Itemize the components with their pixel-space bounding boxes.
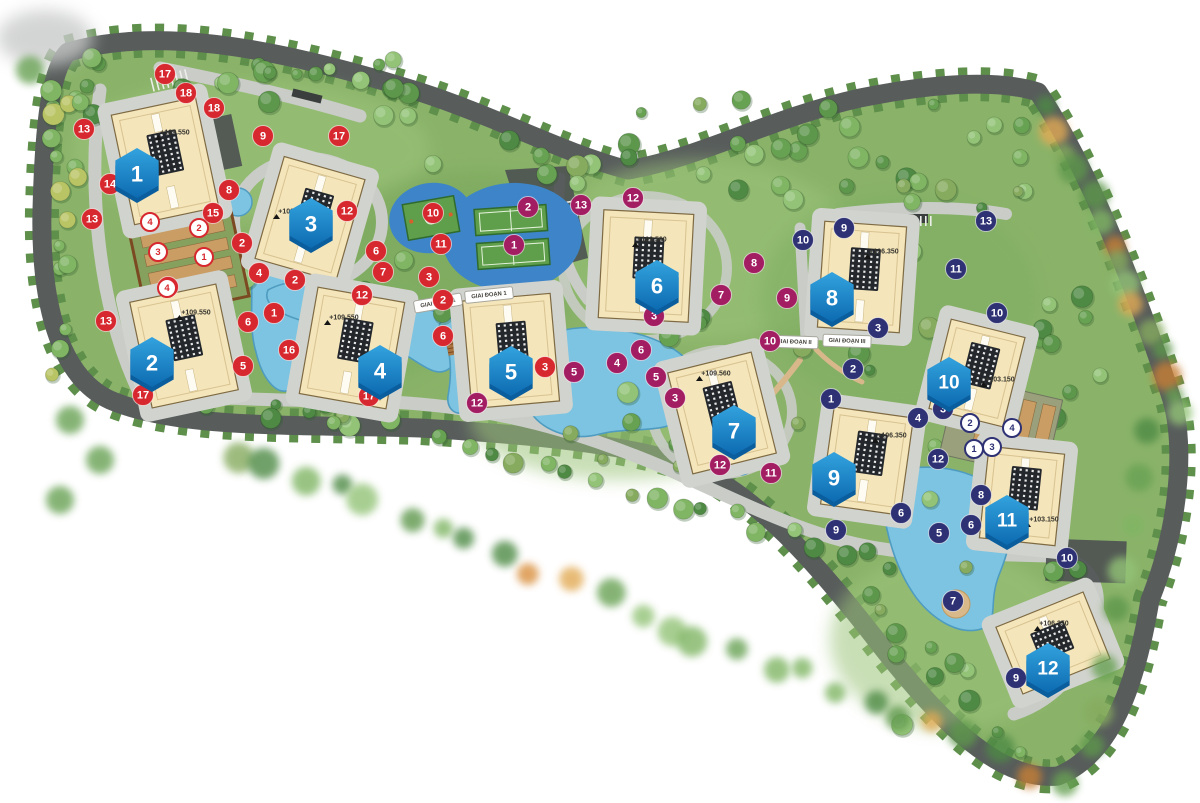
site-plan-svg: +109.550+109.550+109.550+109.550+109.560… [0,0,1200,803]
svg-text:11: 11 [950,264,962,276]
svg-text:2: 2 [146,351,158,376]
svg-text:12: 12 [714,460,726,472]
svg-text:10: 10 [938,373,959,394]
marker-red-3: 3 [419,267,440,288]
marker-magenta-3: 3 [665,388,686,409]
marker-red-1: 1 [264,303,285,324]
svg-text:+109.550: +109.550 [181,310,210,317]
svg-text:8: 8 [826,286,838,311]
svg-text:+106.350: +106.350 [1039,621,1068,628]
marker-red-6: 6 [366,241,387,262]
svg-text:12: 12 [341,206,353,218]
svg-text:6: 6 [638,345,644,357]
svg-text:3: 3 [875,323,881,335]
svg-text:5: 5 [653,372,659,384]
svg-text:9: 9 [833,525,839,537]
marker-navy-10: 10 [1057,548,1078,569]
marker-navy-6: 6 [961,515,982,536]
marker-navy-8: 8 [971,485,992,506]
marker-red-18: 18 [204,98,225,119]
svg-text:7: 7 [380,267,386,279]
marker-navy-12: 12 [928,449,949,470]
svg-text:1: 1 [971,444,977,455]
marker-white-red-1: 1 [195,248,213,266]
svg-text:6: 6 [245,317,251,329]
svg-text:4: 4 [1009,423,1015,434]
marker-magenta-1: 1 [504,235,525,256]
svg-text:5: 5 [936,528,942,540]
marker-navy-2: 2 [843,359,864,380]
marker-white-red-4: 4 [141,213,159,231]
svg-text:12: 12 [627,193,639,205]
marker-white-red-2: 2 [190,219,208,237]
marker-navy-6: 6 [891,503,912,524]
svg-text:+109.550: +109.550 [160,130,189,137]
svg-text:4: 4 [256,268,263,280]
svg-text:8: 8 [226,185,232,197]
marker-magenta-7: 7 [711,285,732,306]
svg-text:4: 4 [614,358,621,370]
svg-text:7: 7 [728,419,740,444]
svg-text:8: 8 [751,258,757,270]
svg-text:3: 3 [989,442,994,453]
svg-text:6: 6 [898,508,904,520]
marker-magenta-8: 8 [744,253,765,274]
svg-text:8: 8 [978,490,984,502]
marker-red-13: 13 [74,119,95,140]
svg-text:9: 9 [784,293,790,305]
marker-magenta-10: 10 [760,331,781,352]
svg-text:3: 3 [672,393,678,405]
svg-text:15: 15 [207,208,219,220]
marker-magenta-12: 12 [710,455,731,476]
marker-red-16: 16 [279,340,300,361]
svg-text:13: 13 [78,124,90,136]
marker-red-5: 5 [233,356,254,377]
marker-white-navy-1: 1 [965,440,983,458]
svg-text:13: 13 [86,214,98,226]
phase-sign: GIAI ĐOẠN III [823,334,871,348]
svg-text:10: 10 [427,208,439,220]
svg-text:4: 4 [147,217,153,228]
marker-red-18: 18 [176,83,197,104]
marker-red-2: 2 [232,233,253,254]
marker-red-6: 6 [238,312,259,333]
marker-red-11: 11 [431,234,452,255]
marker-red-17: 17 [155,64,176,85]
marker-magenta-12: 12 [623,188,644,209]
svg-text:12: 12 [932,454,944,466]
marker-magenta-5: 5 [564,362,585,383]
svg-text:11: 11 [997,511,1018,532]
svg-text:4: 4 [915,413,922,425]
marker-navy-5: 5 [929,523,950,544]
marker-red-2: 2 [285,270,306,291]
svg-text:6: 6 [651,274,663,299]
svg-text:9: 9 [260,131,266,143]
svg-text:18: 18 [180,88,192,100]
svg-text:5: 5 [240,361,246,373]
svg-text:6: 6 [373,246,379,258]
marker-red-10: 10 [423,203,444,224]
svg-text:17: 17 [333,131,345,143]
marker-white-navy-2: 2 [961,414,979,432]
svg-text:2: 2 [440,295,446,307]
marker-magenta-2: 2 [518,197,539,218]
svg-text:2: 2 [967,418,972,429]
svg-text:1: 1 [828,394,834,406]
marker-red-15: 15 [203,203,224,224]
marker-magenta-5: 5 [646,367,667,388]
svg-text:3: 3 [542,362,548,374]
marker-navy-9: 9 [1006,668,1027,689]
marker-magenta-9: 9 [777,288,798,309]
svg-text:2: 2 [850,364,856,376]
marker-red-12: 12 [337,201,358,222]
svg-text:14: 14 [104,179,117,191]
svg-text:2: 2 [196,223,201,234]
svg-text:7: 7 [718,290,724,302]
svg-text:12: 12 [356,290,368,302]
marker-white-red-4: 4 [158,279,176,297]
marker-navy-10: 10 [793,230,814,251]
svg-text:13: 13 [100,316,112,328]
marker-white-red-3: 3 [149,243,167,261]
marker-navy-11: 11 [946,259,967,280]
svg-text:+103.150: +103.150 [985,377,1014,384]
svg-text:16: 16 [283,345,295,357]
marker-red-13: 13 [96,311,117,332]
svg-text:12: 12 [471,398,483,410]
svg-text:17: 17 [159,69,171,81]
marker-white-navy-4: 4 [1003,419,1021,437]
svg-text:10: 10 [764,336,776,348]
marker-red-7: 7 [373,262,394,283]
marker-red-8: 8 [219,180,240,201]
svg-text:+106.350: +106.350 [869,249,898,256]
svg-text:5: 5 [571,367,577,379]
marker-red-9: 9 [253,126,274,147]
marker-navy-10: 10 [987,303,1008,324]
svg-text:GIAI ĐOẠN II: GIAI ĐOẠN II [776,339,812,346]
marker-magenta-6: 6 [631,340,652,361]
svg-text:12: 12 [1037,659,1058,680]
svg-text:2: 2 [292,275,298,287]
building-8 [804,207,921,346]
svg-text:2: 2 [239,238,245,250]
svg-text:1: 1 [131,162,143,187]
marker-white-navy-3: 3 [983,438,1001,456]
svg-text:18: 18 [208,103,220,115]
marker-magenta-13: 13 [571,195,592,216]
masterplan-canvas: +109.550+109.550+109.550+109.550+109.560… [0,0,1200,803]
marker-navy-7: 7 [943,591,964,612]
marker-red-13: 13 [82,209,103,230]
marker-navy-3: 3 [868,318,889,339]
marker-red-6: 6 [433,326,454,347]
svg-text:3: 3 [305,212,317,237]
svg-text:4: 4 [164,283,170,294]
marker-red-3: 3 [535,357,556,378]
marker-magenta-4: 4 [607,353,628,374]
svg-text:11: 11 [765,468,777,480]
svg-text:1: 1 [201,252,207,263]
marker-magenta-11: 11 [761,463,782,484]
svg-text:5: 5 [505,360,517,385]
svg-text:10: 10 [797,235,809,247]
marker-navy-13: 13 [976,211,997,232]
svg-text:+103.150: +103.150 [1029,517,1058,524]
marker-red-12: 12 [352,285,373,306]
marker-navy-4: 4 [908,408,929,429]
svg-text:3: 3 [155,247,160,258]
svg-text:9: 9 [828,466,840,491]
marker-navy-9: 9 [834,218,855,239]
svg-text:+109.560: +109.560 [637,237,666,244]
svg-text:4: 4 [374,359,387,384]
svg-text:6: 6 [968,520,974,532]
svg-text:3: 3 [426,272,432,284]
svg-text:1: 1 [511,240,517,252]
marker-red-4: 4 [249,263,270,284]
svg-text:+109.550: +109.550 [329,315,358,322]
svg-text:9: 9 [1013,673,1019,685]
svg-text:17: 17 [137,390,149,402]
svg-text:+109.560: +109.560 [701,371,730,378]
svg-text:10: 10 [1061,553,1073,565]
marker-navy-1: 1 [821,389,842,410]
marker-magenta-12: 12 [467,393,488,414]
marker-navy-9: 9 [826,520,847,541]
svg-text:11: 11 [435,239,447,251]
svg-text:13: 13 [575,200,587,212]
svg-text:7: 7 [950,596,956,608]
svg-text:13: 13 [980,216,992,228]
svg-text:10: 10 [991,308,1003,320]
marker-red-2: 2 [433,290,454,311]
svg-text:1: 1 [271,308,277,320]
svg-text:6: 6 [440,331,446,343]
svg-text:+106.350: +106.350 [877,433,906,440]
svg-text:9: 9 [841,223,847,235]
marker-red-17: 17 [329,126,350,147]
svg-text:2: 2 [525,202,531,214]
